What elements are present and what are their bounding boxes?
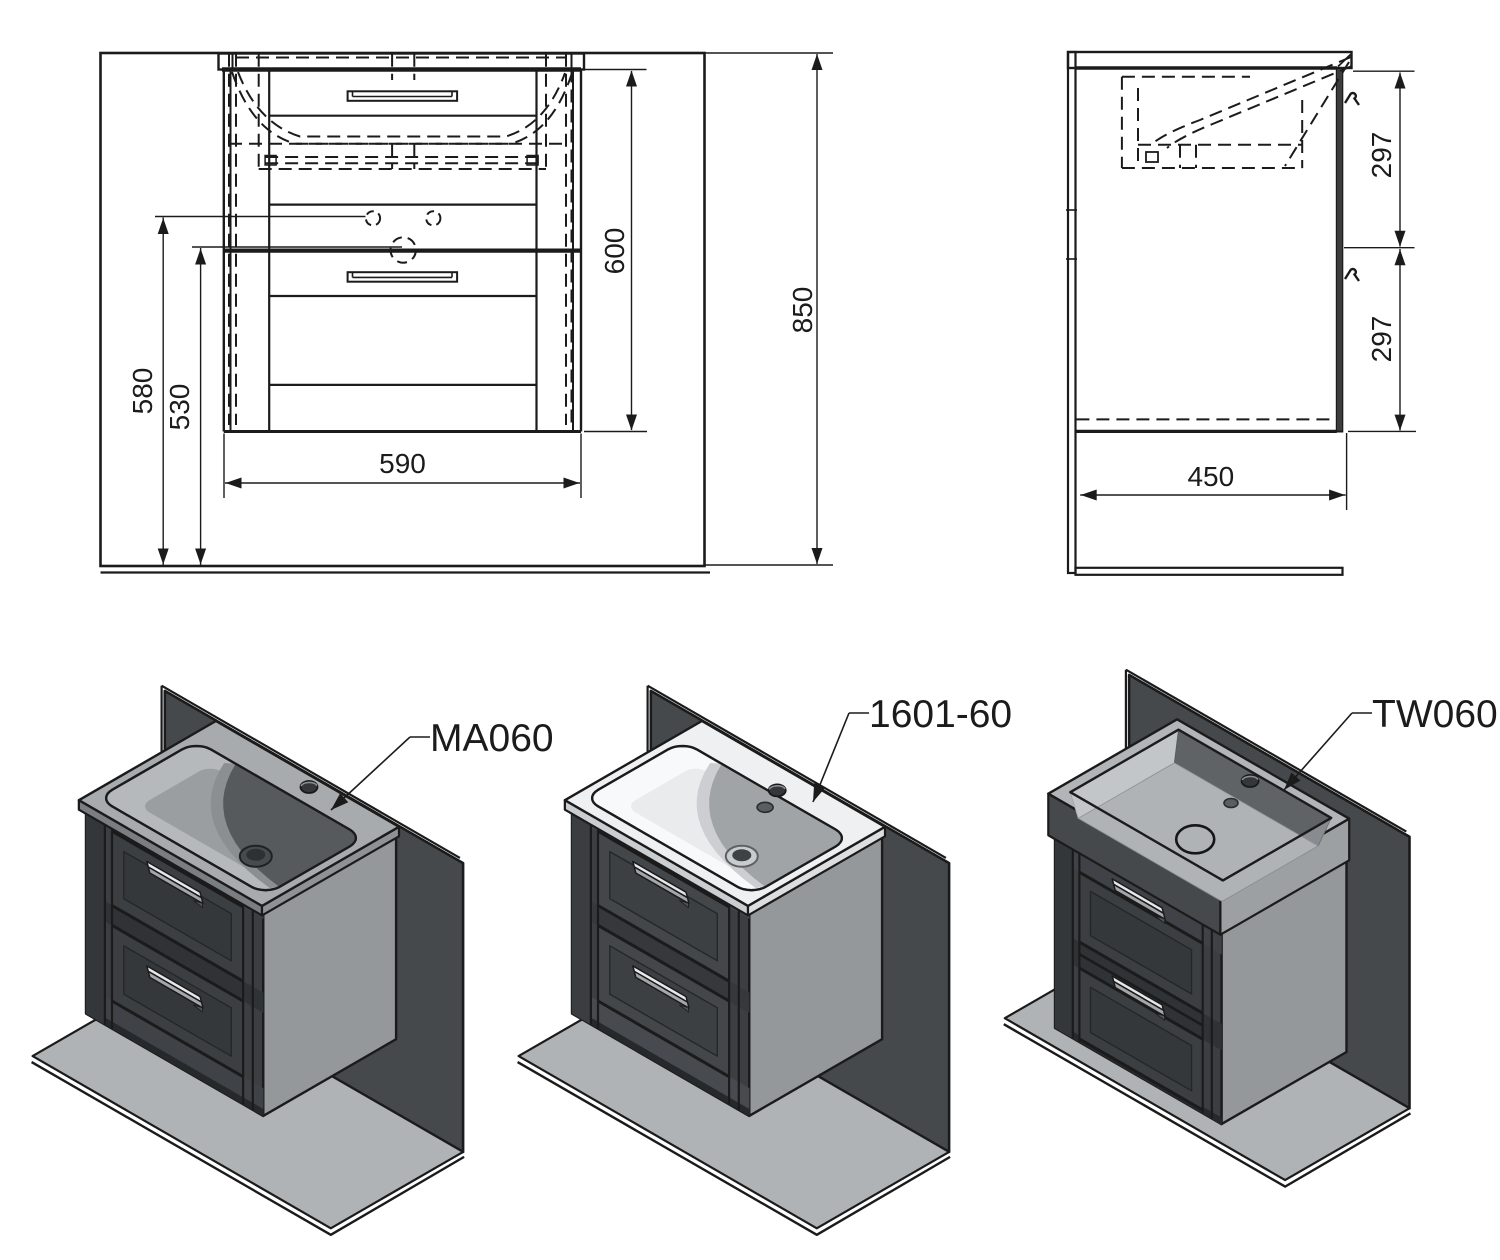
svg-text:600: 600	[599, 228, 630, 275]
svg-text:530: 530	[164, 384, 195, 431]
svg-text:297: 297	[1366, 316, 1397, 363]
svg-text:TW060: TW060	[1372, 693, 1498, 736]
svg-text:297: 297	[1366, 132, 1397, 179]
svg-text:1601-60: 1601-60	[869, 693, 1012, 736]
svg-text:450: 450	[1187, 461, 1234, 492]
svg-text:580: 580	[127, 368, 158, 415]
svg-text:590: 590	[379, 448, 426, 479]
svg-text:MA060: MA060	[430, 717, 554, 760]
svg-text:850: 850	[787, 287, 818, 334]
